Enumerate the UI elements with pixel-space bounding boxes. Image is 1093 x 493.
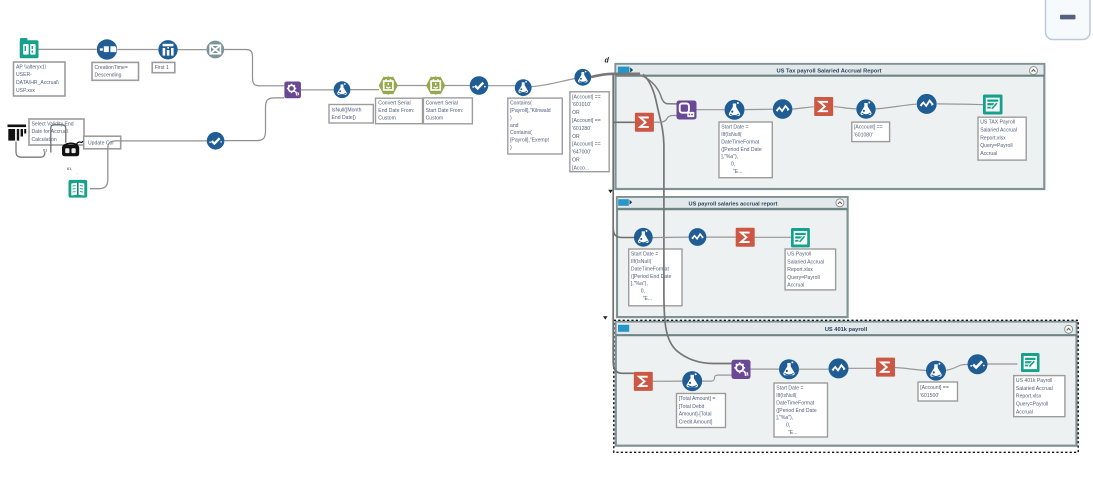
svg-text:US TAX Payroll: US TAX Payroll xyxy=(980,120,1015,126)
svg-text:'601080': '601080' xyxy=(854,133,873,139)
svg-text:[Account] ==: [Account] == xyxy=(572,118,601,124)
svg-text:[Acco...: [Acco... xyxy=(572,165,589,171)
svg-text:Accrual: Accrual xyxy=(1016,409,1033,415)
svg-text:USER-: USER- xyxy=(16,72,32,78)
svg-text:],"%a"),: ],"%a"), xyxy=(631,281,648,287)
svg-text:'601010': '601010' xyxy=(572,102,591,108)
svg-text:IsNull([Month: IsNull([Month xyxy=(332,107,362,113)
svg-text:Start Date From:: Start Date From: xyxy=(426,108,464,114)
svg-text:DateTimeFormat: DateTimeFormat xyxy=(721,139,760,145)
svg-text:61: 61 xyxy=(43,149,47,153)
svg-text:[Payroll],"Kilnwald: [Payroll],"Kilnwald xyxy=(510,108,551,114)
svg-text:Query=Payroll: Query=Payroll xyxy=(1016,402,1048,408)
svg-text:[Payroll],"Exempt: [Payroll],"Exempt xyxy=(510,138,549,144)
svg-text:Contains(: Contains( xyxy=(510,130,532,136)
svg-text:IIf(IsNull(: IIf(IsNull( xyxy=(776,393,797,399)
svg-text:'601500': '601500' xyxy=(920,393,939,399)
svg-text:Report.xlsx: Report.xlsx xyxy=(1016,394,1042,400)
svg-text:USP.xxx: USP.xxx xyxy=(16,88,35,94)
svg-text:"E...: "E... xyxy=(788,430,797,436)
svg-text:Update Col: Update Col xyxy=(88,141,113,147)
svg-text:Convert Serial: Convert Serial xyxy=(426,100,458,106)
svg-text:Query=Payroll: Query=Payroll xyxy=(787,275,819,281)
svg-text:and: and xyxy=(510,123,519,129)
svg-text:[Account] ==: [Account] == xyxy=(572,142,601,148)
svg-text:Convert Serial: Convert Serial xyxy=(378,100,410,106)
svg-text:Custom: Custom xyxy=(426,116,444,122)
svg-text:US payroll salaries accrual re: US payroll salaries accrual report xyxy=(689,202,778,208)
svg-text:[Account] ==: [Account] == xyxy=(920,385,949,391)
svg-text:Query=Payroll: Query=Payroll xyxy=(980,143,1012,149)
svg-text:],"%a"),: ],"%a"), xyxy=(721,154,738,160)
svg-text:): ) xyxy=(510,145,512,151)
svg-text:Salaried Accrual: Salaried Accrual xyxy=(980,128,1017,134)
svg-text:d: d xyxy=(605,58,610,65)
svg-text:Report.xlsx: Report.xlsx xyxy=(787,267,813,273)
svg-text:Salaried Accrual: Salaried Accrual xyxy=(787,259,824,265)
svg-text:Start Date =: Start Date = xyxy=(721,125,748,131)
svg-text:US Payroll: US Payroll xyxy=(787,252,811,258)
svg-text:([Period End Date: ([Period End Date xyxy=(776,408,817,414)
svg-text:Custom: Custom xyxy=(378,116,396,122)
svg-text:"E...: "E... xyxy=(733,169,742,175)
svg-text:Accrual: Accrual xyxy=(787,283,804,289)
svg-text:0,: 0, xyxy=(641,289,645,295)
svg-text:'647000': '647000' xyxy=(572,150,591,156)
svg-text:[Total Amount] =: [Total Amount] = xyxy=(679,396,716,402)
svg-text:Start Date =: Start Date = xyxy=(776,386,803,392)
svg-text:([Period End Date: ([Period End Date xyxy=(631,274,672,280)
svg-text:Date for Accrual: Date for Accrual xyxy=(32,129,68,135)
svg-text:Amount]-[Total: Amount]-[Total xyxy=(679,412,712,418)
svg-text:[Account] ==: [Account] == xyxy=(854,125,883,131)
svg-text:First 1: First 1 xyxy=(155,65,169,71)
svg-text:US 401k Payroll: US 401k Payroll xyxy=(1016,378,1053,384)
svg-text:End Date From:: End Date From: xyxy=(378,108,414,114)
svg-text:AP \\alteryx1\: AP \\alteryx1\ xyxy=(16,64,47,70)
svg-text:[Total Debit: [Total Debit xyxy=(679,404,705,410)
svg-text:US 401k payroll: US 401k payroll xyxy=(825,327,868,333)
svg-text:0,: 0, xyxy=(786,423,790,429)
svg-text:],"%a"),: ],"%a"), xyxy=(776,415,793,421)
svg-text:CreationTime=: CreationTime= xyxy=(95,65,128,71)
svg-text:IIf(IsNull(: IIf(IsNull( xyxy=(631,259,652,265)
svg-text:DateTimeFormat: DateTimeFormat xyxy=(776,400,815,406)
svg-text:Salaried Accrual: Salaried Accrual xyxy=(1016,386,1053,392)
svg-text:,: , xyxy=(77,171,78,175)
svg-text:OR: OR xyxy=(572,158,580,164)
svg-text:0,: 0, xyxy=(731,162,735,168)
svg-text:Report.xlsx: Report.xlsx xyxy=(980,135,1006,141)
svg-text:IIf(IsNull(: IIf(IsNull( xyxy=(721,132,742,138)
svg-text:Start Date =: Start Date = xyxy=(631,252,658,258)
svg-text:"E...: "E... xyxy=(643,296,652,302)
svg-text:[Account] ==: [Account] == xyxy=(572,94,601,100)
svg-text:End Date]): End Date]) xyxy=(332,115,357,121)
svg-text:DATA\HR_Accrual\: DATA\HR_Accrual\ xyxy=(16,80,59,86)
svg-text:61,: 61, xyxy=(67,167,72,171)
svg-text:): ) xyxy=(510,115,512,121)
svg-text:Accrual: Accrual xyxy=(980,151,997,157)
svg-text:Calculation: Calculation xyxy=(32,137,57,143)
svg-text:OR: OR xyxy=(572,110,580,116)
svg-text:Credit Amount]: Credit Amount] xyxy=(679,419,713,425)
svg-text:Contains(: Contains( xyxy=(510,101,532,107)
svg-text:([Period End Date: ([Period End Date xyxy=(721,147,762,153)
svg-text:OR: OR xyxy=(572,134,580,140)
svg-text:US Tax payroll Salaried Accrua: US Tax payroll Salaried Accrual Report xyxy=(777,68,882,74)
svg-text:Descending: Descending xyxy=(95,73,122,79)
svg-text:'601280': '601280' xyxy=(572,126,591,132)
